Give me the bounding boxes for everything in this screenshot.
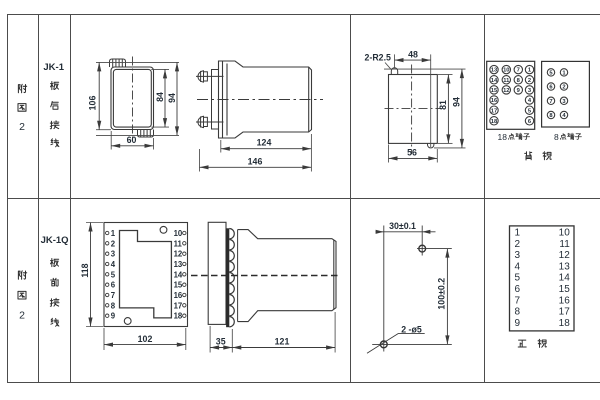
svg-text:13: 13: [174, 260, 183, 269]
svg-text:8: 8: [111, 301, 116, 310]
svg-text:11: 11: [559, 239, 570, 250]
svg-text:124: 124: [257, 138, 272, 148]
svg-text:6: 6: [111, 281, 116, 290]
svg-text:3: 3: [111, 250, 116, 259]
svg-text:4: 4: [515, 261, 521, 272]
svg-text:14: 14: [559, 273, 571, 284]
svg-text:60: 60: [127, 135, 137, 145]
svg-text:13: 13: [559, 261, 571, 272]
svg-text:11: 11: [174, 239, 183, 248]
svg-text:10: 10: [559, 228, 571, 239]
svg-text:8: 8: [554, 132, 559, 142]
svg-text:18: 18: [491, 119, 498, 125]
svg-text:2: 2: [528, 78, 531, 84]
svg-text:2: 2: [562, 85, 565, 91]
svg-text:5: 5: [111, 270, 116, 279]
svg-text:JK-1Q: JK-1Q: [41, 235, 69, 246]
svg-text:10: 10: [174, 229, 183, 238]
svg-text:7: 7: [111, 291, 115, 300]
svg-text:15: 15: [491, 88, 498, 94]
svg-text:1: 1: [515, 228, 521, 239]
svg-text:16: 16: [174, 291, 183, 300]
svg-text:81: 81: [438, 100, 448, 110]
svg-text:2-R2.5: 2-R2.5: [365, 52, 392, 62]
svg-text:12: 12: [559, 250, 571, 261]
svg-text:8: 8: [515, 307, 521, 318]
svg-text:18: 18: [498, 132, 508, 142]
svg-text:15: 15: [559, 284, 571, 295]
svg-text:17: 17: [559, 307, 571, 318]
svg-text:30±0.1: 30±0.1: [389, 221, 416, 231]
svg-text:JK-1: JK-1: [43, 62, 64, 73]
svg-text:118: 118: [80, 263, 90, 277]
svg-text:1: 1: [111, 229, 116, 238]
svg-text:102: 102: [138, 334, 153, 344]
svg-text:146: 146: [248, 156, 263, 166]
svg-text:121: 121: [275, 337, 290, 347]
svg-text:13: 13: [491, 68, 498, 74]
svg-text:7: 7: [549, 99, 552, 105]
svg-text:6: 6: [515, 284, 521, 295]
svg-text:2: 2: [515, 239, 521, 250]
svg-text:17: 17: [174, 301, 183, 310]
svg-text:2 -ø5: 2 -ø5: [401, 324, 422, 334]
svg-text:5: 5: [515, 273, 521, 284]
svg-text:94: 94: [452, 97, 462, 107]
svg-text:4: 4: [111, 260, 116, 269]
svg-text:48: 48: [408, 49, 418, 59]
svg-text:18: 18: [559, 318, 571, 329]
svg-text:12: 12: [174, 250, 183, 259]
svg-text:9: 9: [111, 312, 116, 321]
svg-text:15: 15: [174, 281, 183, 290]
svg-text:56: 56: [407, 148, 417, 158]
svg-text:3: 3: [515, 250, 521, 261]
svg-text:9: 9: [515, 318, 521, 329]
svg-text:84: 84: [155, 92, 165, 102]
svg-text:12: 12: [503, 88, 509, 94]
svg-text:2: 2: [111, 239, 116, 248]
svg-text:17: 17: [491, 108, 497, 114]
svg-text:94: 94: [167, 93, 177, 103]
svg-text:16: 16: [559, 295, 571, 306]
svg-text:7: 7: [517, 68, 520, 74]
svg-text:14: 14: [174, 270, 183, 279]
svg-text:2: 2: [19, 121, 25, 133]
svg-text:2: 2: [19, 310, 25, 322]
svg-text:18: 18: [174, 312, 183, 321]
svg-text:11: 11: [503, 78, 510, 84]
svg-text:100±0.2: 100±0.2: [437, 278, 447, 310]
svg-text:16: 16: [491, 98, 498, 104]
svg-text:10: 10: [503, 68, 509, 74]
svg-text:106: 106: [87, 96, 97, 111]
svg-text:35: 35: [216, 337, 226, 347]
svg-text:14: 14: [491, 78, 498, 84]
svg-text:7: 7: [515, 295, 521, 306]
